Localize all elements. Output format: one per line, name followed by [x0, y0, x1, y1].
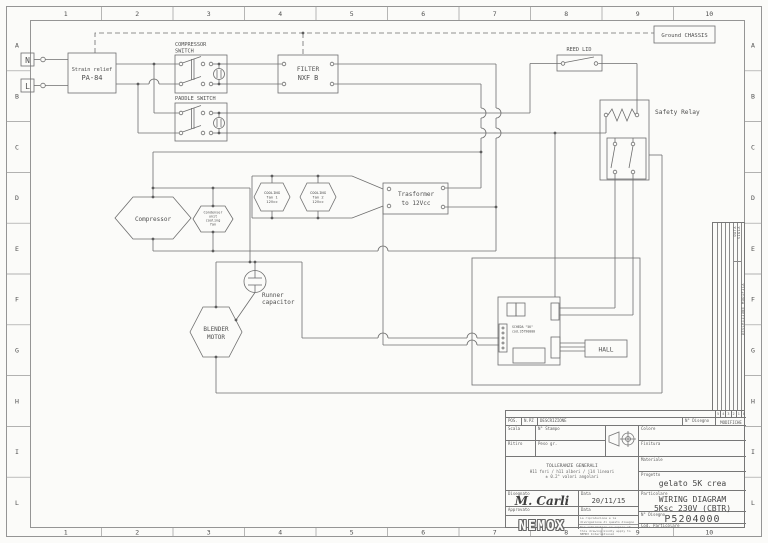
- revision-sigla-label: SIGLA: [737, 226, 741, 239]
- border-col-label: 2: [135, 10, 139, 18]
- border-row-label: C: [751, 143, 755, 151]
- note-2: For information or copies of this drawin…: [579, 525, 638, 538]
- border-row-label: F: [751, 296, 755, 304]
- stampo-cell: N° Stampo: [536, 426, 606, 441]
- junction-dots: [137, 32, 557, 359]
- safety-relay: [560, 100, 650, 315]
- filter-box: [227, 55, 338, 93]
- border-col-label: 7: [493, 10, 497, 18]
- cooling-fan-1-label: COOLING fan 1 12Vcc: [264, 190, 281, 204]
- date-value: 20/11/15: [579, 497, 638, 505]
- border-row-label: G: [751, 347, 755, 355]
- revision-data-label: DATA: [733, 226, 737, 236]
- rev-num: 0: [741, 411, 746, 417]
- projection-symbol-cell: [606, 426, 639, 457]
- border-row-label: A: [751, 42, 755, 50]
- tolleranze-cell: TOLLERANZE GENERALI H11 fori / h11 alber…: [506, 457, 639, 491]
- runner-capacitor-label2: capacitor: [262, 299, 295, 306]
- border-row-label: G: [15, 347, 19, 355]
- svg-text:12Vcc: 12Vcc: [266, 199, 277, 204]
- compressor-section: [115, 152, 496, 262]
- drawing-sheet: 1122334455667788991010AABBCCDDEEFFGGHHII…: [0, 0, 768, 543]
- peso-cell: Peso gr.: [536, 441, 606, 457]
- border-col-label: 3: [207, 529, 211, 537]
- border-col-label: 9: [636, 10, 640, 18]
- border-row-label: D: [15, 194, 19, 202]
- transformer-label: Trasformer: [398, 191, 435, 198]
- border-row-label: L: [15, 499, 19, 507]
- disegnato-cell: Disegnato M. Carli: [506, 491, 579, 507]
- compressor-label: Compressor: [135, 216, 172, 223]
- safety-relay-label: Safety Relay: [655, 109, 700, 116]
- filter-code: NXF B: [298, 74, 318, 82]
- l-terminal-label: L: [25, 82, 30, 91]
- title-block: 5 4 3 2 1 0 POS. N.PZ DESCRIZIONE N° Dis…: [505, 410, 745, 528]
- border-row-label: I: [15, 448, 19, 456]
- note-1: La riproduzione e la divulgazione di que…: [579, 516, 638, 525]
- reed-lid-label: REED LID: [567, 47, 592, 53]
- border-col-label: 1: [64, 529, 68, 537]
- n-terminal-label: N: [25, 56, 30, 65]
- border-col-label: 8: [564, 10, 568, 18]
- ndisegno-col-header: N° Disegno: [683, 418, 716, 426]
- border-row-label: H: [751, 397, 755, 405]
- colore-cell: Colore: [639, 426, 746, 441]
- strain-relief-box: [68, 53, 116, 93]
- border-col-label: 7: [493, 529, 497, 537]
- border-row-label: A: [15, 42, 19, 50]
- pos-header: POS.: [506, 418, 522, 426]
- nemox-logo: NEMOX: [506, 519, 578, 534]
- revision-numbers: 5 4 3 2 1 0: [716, 411, 746, 418]
- scala-cell: Scala: [506, 426, 536, 441]
- blender-motor-label2: MOTOR: [207, 334, 225, 341]
- board-label: SCHEDA "5K": [512, 325, 533, 329]
- border-row-label: H: [15, 397, 19, 405]
- parts-row: [506, 411, 716, 418]
- border-row-label: L: [751, 499, 755, 507]
- border-col-label: 4: [278, 529, 282, 537]
- compressor-switch: [175, 55, 227, 93]
- border-row-label: B: [751, 93, 755, 101]
- descrizione-header: DESCRIZIONE: [538, 418, 683, 426]
- border-row-label: B: [15, 93, 19, 101]
- paddle-switch: [175, 103, 227, 141]
- border-col-label: 10: [705, 529, 713, 537]
- reed-lid: [557, 55, 602, 71]
- border-col-label: 10: [705, 10, 713, 18]
- cod-particolare-cell: Cod. Particolare: [639, 524, 746, 529]
- data2-cell: Data: [579, 507, 639, 516]
- border-row-label: E: [15, 245, 19, 253]
- modifiche-header: MODIFICHE: [716, 418, 746, 426]
- revision-descrizione-label: DESCRIZIONE MODIFICA: [741, 283, 745, 335]
- ground-chassis-label: Ground CHASSIS: [661, 33, 707, 39]
- border-row-label: F: [15, 296, 19, 304]
- hall-sensor: [560, 340, 627, 357]
- materiale-cell: Materiale: [639, 457, 746, 472]
- hall-label: HALL: [599, 347, 614, 354]
- ritiro-cell: Ritiro: [506, 441, 536, 457]
- logo-cell: NEMOX: [506, 516, 579, 529]
- data-cell: Data 20/11/15: [579, 491, 639, 507]
- border-row-label: E: [751, 245, 755, 253]
- condenser-fan-label: Condenser unit cooling fan: [204, 211, 223, 227]
- blender-motor-label: BLENDER: [203, 326, 229, 333]
- compressor-switch-label: COMPRESSOR: [175, 42, 207, 48]
- finitura-cell: Finitura: [639, 441, 746, 457]
- border-col-label: 3: [207, 10, 211, 18]
- strain-relief-code: PA-84: [81, 74, 102, 82]
- transformer-label2: to 12Vcc: [402, 200, 431, 207]
- notes-cell: La riproduzione e la divulgazione di que…: [579, 516, 639, 529]
- border-col-label: 1: [64, 10, 68, 18]
- approvato-cell: Approvato: [506, 507, 579, 516]
- border-row-label: D: [751, 194, 755, 202]
- particolare-value-1: WIRING DIAGRAM: [639, 495, 746, 504]
- npz-header: N.PZ: [522, 418, 538, 426]
- border-col-label: 2: [135, 529, 139, 537]
- paddle-switch-label: PADDLE SWITCH: [175, 96, 216, 102]
- wiring-schematic: Ground CHASSIS N L Strain relief PA-84: [21, 26, 715, 393]
- signature: M. Carli: [506, 494, 578, 508]
- feed-wires: [116, 64, 179, 133]
- border-col-label: 5: [350, 10, 354, 18]
- compressor-switch-label2: SWITCH: [175, 49, 194, 55]
- border-col-label: 4: [278, 10, 282, 18]
- particolare-cell: Particolare WIRING DIAGRAM 5Ksc 230V (CB…: [639, 491, 746, 512]
- progetto-value: gelato 5K crea: [639, 479, 746, 488]
- border-row-label: C: [15, 143, 19, 151]
- border-col-label: 6: [421, 10, 425, 18]
- board-code: cod.35790000: [512, 330, 535, 334]
- runner-capacitor-label: Runner: [262, 292, 284, 299]
- svg-text:12Vcc: 12Vcc: [312, 199, 323, 204]
- svg-text:fan: fan: [210, 223, 216, 227]
- border-col-label: 6: [421, 529, 425, 537]
- revision-strip: DATA SIGLA DESCRIZIONE MODIFICA: [712, 222, 745, 410]
- trunk-wires: [334, 64, 501, 251]
- filter-label: FILTER: [297, 66, 320, 73]
- progetto-cell: Progetto gelato 5K crea: [639, 472, 746, 491]
- border-col-label: 5: [350, 529, 354, 537]
- cooling-fan-2-label: COOLING fan 2 12Vcc: [310, 190, 327, 204]
- projection-symbol-icon: [606, 426, 637, 455]
- border-row-label: I: [751, 448, 755, 456]
- strain-relief-label: Strain relief: [72, 67, 113, 73]
